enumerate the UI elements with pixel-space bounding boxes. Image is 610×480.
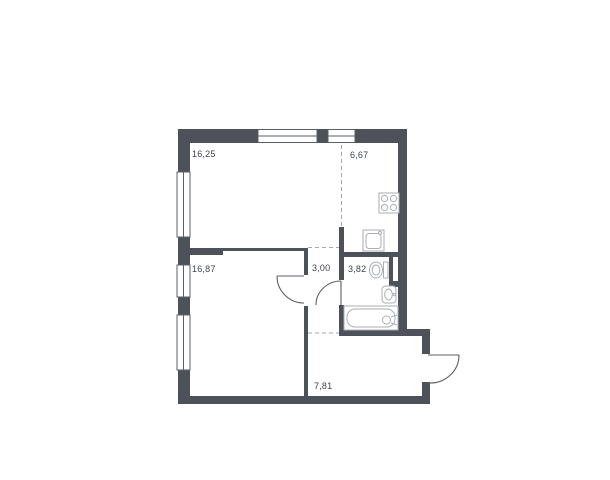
wall-bathroom-top bbox=[344, 252, 398, 257]
window-icon-left-lower bbox=[177, 315, 190, 370]
wall-duct-left bbox=[389, 257, 393, 283]
wall-bedroom-top-thick bbox=[184, 248, 223, 255]
door-swing-icon-entrance bbox=[428, 355, 459, 383]
room-area-label-bathroom: 3,82 bbox=[348, 264, 366, 274]
washbasin-icon bbox=[382, 286, 396, 303]
room-area-label-hallway: 3,00 bbox=[312, 263, 330, 273]
room-area-label-bedroom: 16,87 bbox=[192, 264, 216, 274]
wall-right bbox=[398, 129, 407, 336]
wall-bathroom-left-upper bbox=[339, 227, 344, 280]
window-icon-top-large bbox=[258, 130, 317, 143]
room-area-label-living-room: 16,25 bbox=[192, 149, 216, 159]
wall-entry-connector bbox=[398, 329, 430, 336]
stove-icon bbox=[379, 193, 399, 213]
wall-entry-right-lower bbox=[422, 382, 430, 398]
floorplan-svg: 16,25 6,67 16,87 3,00 3,82 7,81 bbox=[0, 0, 610, 480]
window-icon-left-middle bbox=[177, 265, 190, 297]
toilet-icon bbox=[370, 262, 389, 278]
window-icon-left-upper bbox=[177, 172, 190, 237]
bathtub-icon bbox=[344, 306, 398, 330]
kitchen-sink-icon bbox=[363, 230, 384, 251]
door-swing-icon-bedroom bbox=[277, 276, 304, 303]
wall-bedroom-right-upper bbox=[304, 251, 308, 275]
window-icon-top-small bbox=[328, 130, 355, 143]
wall-bedroom-top-thin bbox=[223, 248, 308, 251]
wall-bedroom-right-lower bbox=[304, 306, 308, 398]
wall-entry-right-upper bbox=[422, 336, 430, 354]
room-area-label-corridor: 7,81 bbox=[314, 381, 332, 391]
room-area-label-kitchen: 6,67 bbox=[350, 150, 368, 160]
door-swing-icon-bathroom bbox=[316, 281, 341, 305]
zone-dashed-lines bbox=[308, 145, 342, 333]
floorplan-image: 16,25 6,67 16,87 3,00 3,82 7,81 bbox=[0, 0, 610, 480]
